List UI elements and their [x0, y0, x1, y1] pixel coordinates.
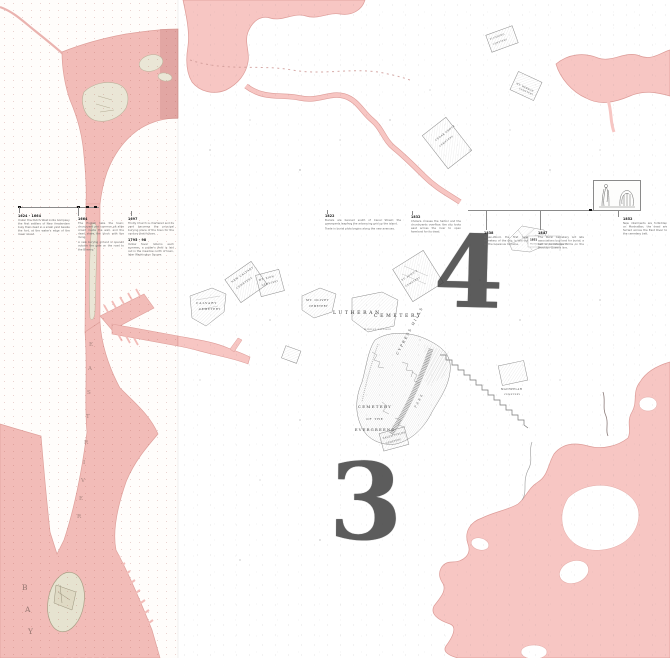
creek-fork — [230, 338, 242, 352]
bay-creek-tail — [608, 100, 614, 132]
calvary-label: CALVARY — [196, 301, 217, 305]
flushing-bay — [183, 0, 365, 92]
svg-text:CEMETERY: CEMETERY — [504, 393, 521, 396]
timeline-event-1838: 1838 Green-Wood, the first rural cemeter… — [484, 231, 528, 246]
timeline-event-1832: 1832 Cholera crosses the harbor and the … — [411, 215, 461, 234]
timeline-marker — [94, 206, 97, 209]
timeline-event-1847: 1847 The Rural Cemetery Act lets associa… — [538, 231, 584, 250]
mt-olivet-plot — [302, 288, 336, 318]
timeline-marker — [86, 206, 89, 209]
creek-outline — [603, 392, 608, 436]
marsh-island-ne — [639, 397, 657, 411]
svg-text:E: E — [79, 496, 83, 502]
svg-text:T: T — [86, 414, 90, 420]
timeline-event-1822: 1822 Burials are banned south of Canal S… — [325, 214, 401, 231]
engraving-figure-left — [602, 187, 609, 206]
engraving-vignette — [593, 180, 641, 211]
timeline-event-1624: 1624 - 1664 Under the Dutch West India C… — [18, 214, 70, 237]
left-map-sheet: E A S T R I V E R B A Y — [0, 0, 178, 658]
district-numeral-3: 3 — [329, 449, 404, 556]
timeline-tick — [540, 210, 541, 230]
svg-text:S: S — [87, 390, 91, 396]
machpelah-label: MACHPELAH — [501, 388, 522, 391]
timeline-tick — [486, 210, 487, 230]
svg-text:CEMETERY: CEMETERY — [199, 307, 221, 311]
svg-text:E: E — [89, 342, 93, 348]
engraving-sketch — [594, 181, 640, 210]
svg-text:CEMETERY: CEMETERY — [358, 404, 392, 409]
sketch-date: 1851 — [530, 238, 537, 242]
small-plot — [281, 346, 300, 364]
flushing-creek-edge — [246, 86, 460, 202]
mt-olivet-label: MT. OLIVET — [306, 298, 329, 302]
svg-text:I: I — [83, 460, 85, 466]
svg-text:A: A — [24, 605, 31, 614]
bay-channel-notch — [521, 645, 547, 658]
engraving-figure-right — [620, 191, 633, 206]
cedar-grove-plot — [422, 117, 471, 169]
svg-text:CEMETERY: CEMETERY — [309, 305, 328, 308]
calvary-plot — [190, 288, 226, 326]
timeline-tick — [131, 211, 132, 216]
right-map-sheet: CALVARY CEMETERY NEW CALVARY CEMETERY MT… — [178, 0, 670, 658]
svg-text:OF THE: OF THE — [366, 417, 383, 421]
timeline-event-1795: 1795 - 98 Yellow fever returns each summ… — [128, 238, 174, 257]
timeline-tick — [78, 207, 79, 216]
timeline-event-1697: 1697 Trinity Church is chartered and its… — [128, 217, 174, 236]
svg-text:Y: Y — [27, 627, 34, 636]
timeline-event-1852: 1852 New interments are forbidden on Man… — [623, 217, 667, 236]
timeline-tick — [618, 211, 619, 217]
timeline-tick — [19, 207, 20, 213]
timeline-marker — [589, 209, 592, 212]
svg-text:B: B — [22, 583, 28, 592]
timeline-event-1664: 1664 The English take the town; churchya… — [78, 217, 124, 252]
svg-text:MIDDLE VILLAGE: MIDDLE VILLAGE — [364, 328, 392, 331]
map-collage: { "colors": { "strip_water": "#f2bcb8", … — [0, 0, 670, 658]
machpelah-plot — [498, 361, 528, 386]
timeline-line-right — [468, 210, 597, 211]
little-neck-bay — [556, 50, 670, 102]
